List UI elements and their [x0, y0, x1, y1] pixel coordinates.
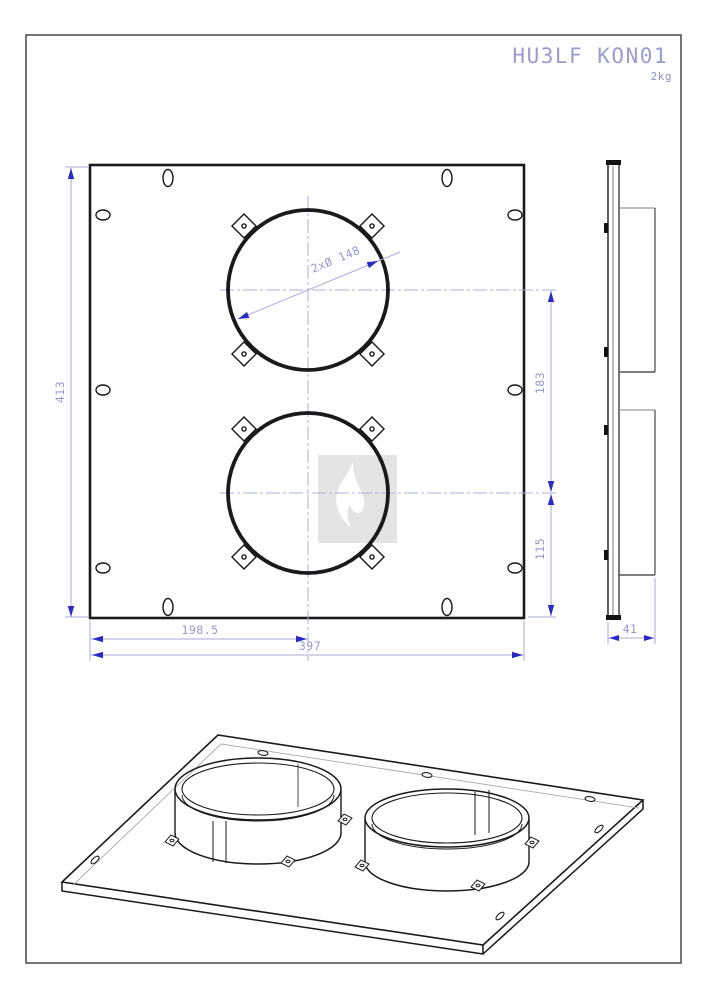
drawing-weight: 2kg — [651, 70, 672, 83]
front-view: 2xØ 148 — [90, 165, 556, 661]
drawing-sheet: HU3LF KON01 2kg — [0, 0, 707, 1000]
drawing-title: HU3LF KON01 — [512, 44, 668, 68]
side-top-cap — [606, 160, 621, 165]
dim-text-hole-spacing: 183 — [533, 372, 547, 394]
dim-text-center-x: 198.5 — [181, 623, 218, 637]
dim-text-bottom-offset: 115 — [533, 538, 547, 560]
side-bottom-cap — [606, 615, 621, 620]
dim-text-overall-height: 413 — [53, 381, 67, 403]
drawing-canvas: HU3LF KON01 2kg — [0, 0, 707, 1000]
dim-text-depth: 41 — [623, 622, 638, 636]
dim-text-overall-width: 397 — [299, 639, 321, 653]
plate-outline — [90, 165, 524, 618]
